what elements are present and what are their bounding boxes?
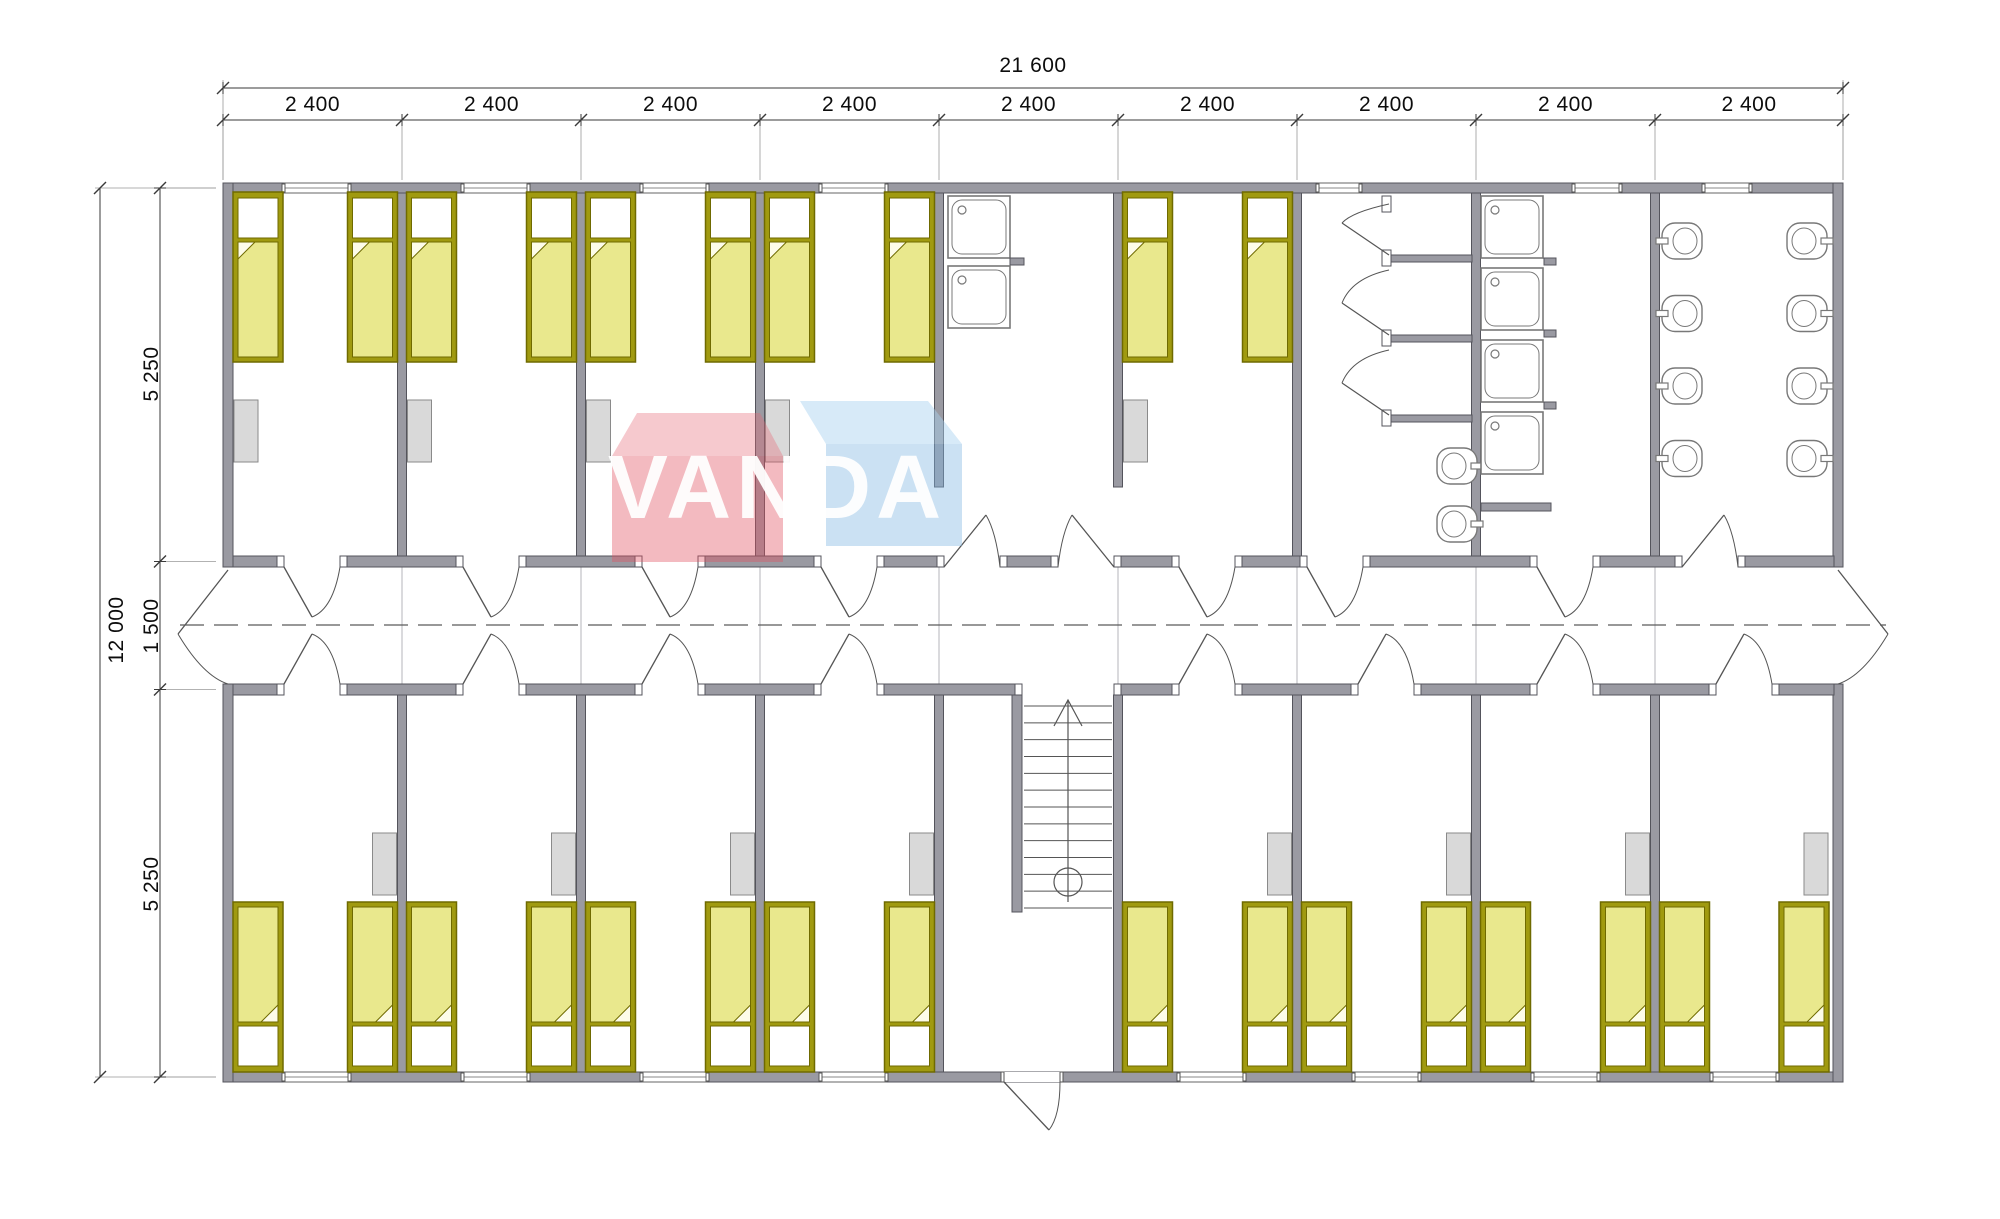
door-jamb-post [1382, 330, 1391, 346]
door-jamb-post [1351, 684, 1358, 695]
door-jamb-post [1414, 684, 1421, 695]
wall-corridor-bottom [1772, 684, 1834, 695]
window-bottom-jamb [282, 1073, 285, 1081]
drain-icon [1491, 350, 1499, 358]
door-leaf [1072, 515, 1114, 567]
wall-room-divider [935, 695, 944, 1072]
bed-pillow [353, 198, 393, 238]
door-swing-arc [1335, 567, 1363, 617]
door-jamb-post [1015, 684, 1022, 695]
door-jamb-post [456, 684, 463, 695]
door-jamb-post [340, 684, 347, 695]
door-jamb-post [1382, 196, 1391, 212]
window-top-jamb [1316, 184, 1319, 192]
door-leaf [642, 634, 670, 684]
door-leaf [1358, 634, 1386, 684]
door-jamb-post [814, 556, 821, 567]
dim-top-total: 21 600 [933, 54, 1133, 78]
wardrobe [552, 833, 576, 895]
door-leaf [1179, 567, 1207, 617]
bed-mattress [532, 907, 572, 1022]
bed-mattress [711, 907, 751, 1022]
door-swing-arc [312, 567, 340, 617]
door-jamb-post [277, 684, 284, 695]
wall-corridor-bottom [233, 684, 284, 695]
bed-pillow [711, 198, 751, 238]
tap-icon [1821, 311, 1833, 317]
door-swing-arc [986, 515, 1000, 567]
door-swing-arc [491, 634, 519, 684]
door-leaf [821, 567, 849, 617]
dim-top-segment-4: 2 400 [790, 93, 910, 117]
door-jamb-post [1000, 556, 1007, 567]
wc-stall-partition [1390, 415, 1472, 422]
tap-icon [1656, 383, 1668, 389]
door-jamb-post [1382, 410, 1391, 426]
bed-mattress [711, 242, 751, 357]
drain-icon [1491, 206, 1499, 214]
wardrobe [731, 833, 755, 895]
door-swing-arc [1565, 567, 1593, 617]
bed-pillow [1248, 1026, 1288, 1066]
wall-corridor-top [1000, 556, 1058, 567]
dim-top-segment-2: 2 400 [432, 93, 552, 117]
wc-stall-door-leaf [1342, 383, 1389, 415]
door-jamb-post [1363, 556, 1370, 567]
wall-room-divider [398, 193, 407, 556]
wardrobe [1804, 833, 1828, 895]
door-swing-arc [849, 634, 877, 684]
drain-icon [958, 206, 966, 214]
window-top-jamb [348, 184, 351, 192]
door-opening [1004, 1072, 1060, 1082]
door-jamb-post [1530, 556, 1537, 567]
bed-mattress [412, 907, 452, 1022]
bed-mattress [1248, 907, 1288, 1022]
bed-pillow [591, 198, 631, 238]
bed-pillow [412, 198, 452, 238]
dim-left-seg-3: 5 250 [140, 804, 164, 964]
door-jamb-post [456, 556, 463, 567]
drain-icon [958, 276, 966, 284]
watermark-text: VANDA [608, 438, 946, 538]
dim-top-segment-5: 2 400 [969, 93, 1089, 117]
bed-pillow [238, 198, 278, 238]
bed-mattress [532, 242, 572, 357]
dim-top-segment-7: 2 400 [1327, 93, 1447, 117]
door-jamb-post [698, 684, 705, 695]
wall-room-divider [1472, 193, 1481, 556]
door-jamb-post [1382, 250, 1391, 266]
door-jamb-post [519, 556, 526, 567]
wall-exterior-left [223, 684, 233, 1082]
door-jamb-post [1530, 684, 1537, 695]
bed-mattress [1128, 907, 1168, 1022]
bed-pillow [412, 1026, 452, 1066]
bed-pillow [353, 1026, 393, 1066]
door-leaf [1307, 567, 1335, 617]
wall-room-divider [398, 695, 407, 1072]
door-leaf [1537, 634, 1565, 684]
door-jamb-post [1235, 556, 1242, 567]
wall-corridor-bottom [519, 684, 642, 695]
bed-pillow [890, 1026, 930, 1066]
wall-room-divider [756, 695, 765, 1072]
door-jamb-post [1235, 684, 1242, 695]
window-bottom-jamb [1710, 1073, 1713, 1081]
bed-mattress [1307, 907, 1347, 1022]
door-jamb-post [1772, 684, 1779, 695]
wc-stall-partition [1390, 255, 1472, 262]
partition-stub [1544, 402, 1556, 409]
bed-mattress [1784, 907, 1824, 1022]
wall-corridor-top [1738, 556, 1834, 567]
door-jamb-post [937, 556, 944, 567]
door-swing-arc [670, 634, 698, 684]
wall-stair-shaft [1012, 695, 1022, 912]
tap-icon [1656, 311, 1668, 317]
wardrobe [373, 833, 397, 895]
window-bottom-jamb [1597, 1073, 1600, 1081]
bed-pillow [238, 1026, 278, 1066]
bed-pillow [1486, 1026, 1526, 1066]
wardrobe [1124, 400, 1148, 462]
bed-pillow [1128, 198, 1168, 238]
bed-pillow [770, 198, 810, 238]
exterior-door-arc [1049, 1082, 1060, 1130]
window-top-jamb [885, 184, 888, 192]
partition-stub [1481, 503, 1551, 511]
door-swing-arc [1565, 634, 1593, 684]
wall-corridor-top [340, 556, 463, 567]
bed-mattress [1486, 907, 1526, 1022]
door-leaf [642, 567, 670, 617]
window-top-jamb [640, 184, 643, 192]
window-bottom-jamb [706, 1073, 709, 1081]
door-swing-arc [491, 567, 519, 617]
bed-pillow [1128, 1026, 1168, 1066]
dim-left-seg-2: 1 500 [140, 546, 164, 706]
window-top-jamb [527, 184, 530, 192]
door-jamb-post [1709, 684, 1716, 695]
drain-icon [1491, 278, 1499, 286]
exterior-door-leaf [1004, 1082, 1049, 1130]
bed-mattress [1606, 907, 1646, 1022]
wall-corridor-top [233, 556, 284, 567]
bed-pillow [591, 1026, 631, 1066]
window-top-jamb [706, 184, 709, 192]
tap-icon [1821, 456, 1833, 462]
bed-mattress [591, 242, 631, 357]
wall-corridor-top [1363, 556, 1537, 567]
wc-stall-door-arc [1342, 350, 1389, 383]
door-jamb-post [1675, 556, 1682, 567]
door-jamb-post [877, 684, 884, 695]
window-top-jamb [1702, 184, 1705, 192]
exterior-door-arc [1838, 634, 1888, 684]
door-swing-arc [1207, 634, 1235, 684]
window-bottom-jamb [348, 1073, 351, 1081]
door-jamb-post [877, 556, 884, 567]
bed-mattress [890, 242, 930, 357]
window-top-jamb [819, 184, 822, 192]
partition-stub [1544, 330, 1556, 337]
wall-corridor-top [1235, 556, 1307, 567]
tap-icon [1821, 383, 1833, 389]
door-jamb-post [1593, 684, 1600, 695]
tap-icon [1821, 238, 1833, 244]
dim-left-total: 12 000 [105, 550, 129, 710]
bed-mattress [238, 907, 278, 1022]
wall-room-divider [1651, 695, 1660, 1072]
wall-exterior-left [223, 183, 233, 567]
door-swing-arc [1744, 634, 1772, 684]
door-jamb-post [1114, 684, 1121, 695]
door-jamb-post [635, 684, 642, 695]
tap-icon [1656, 238, 1668, 244]
shower-tray [948, 266, 1010, 328]
wall-room-divider [1472, 695, 1481, 1072]
shower-tray [1481, 268, 1543, 330]
bed-pillow [1665, 1026, 1705, 1066]
door-swing-arc [849, 567, 877, 617]
partition-stub [1010, 258, 1024, 265]
window-bottom-jamb [1531, 1073, 1534, 1081]
bed-pillow [532, 198, 572, 238]
wall-corridor-top [877, 556, 944, 567]
bed-mattress [353, 907, 393, 1022]
wall-corridor-bottom [877, 684, 1022, 695]
dim-top-segment-3: 2 400 [611, 93, 731, 117]
window-bottom-jamb [819, 1073, 822, 1081]
window-bottom-jamb [461, 1073, 464, 1081]
door-leaf [1682, 515, 1724, 567]
door-jamb-post [1114, 556, 1121, 567]
door-swing-arc [1207, 567, 1235, 617]
door-leaf [284, 567, 312, 617]
drain-icon [1491, 422, 1499, 430]
wardrobe [1626, 833, 1650, 895]
door-leaf [1716, 634, 1744, 684]
door-swing-arc [1724, 515, 1738, 567]
bed-pillow [532, 1026, 572, 1066]
tap-icon [1656, 456, 1668, 462]
bed-pillow [1307, 1026, 1347, 1066]
partition-stub [1544, 258, 1556, 265]
door-jamb-post [1738, 556, 1745, 567]
dim-top-segment-8: 2 400 [1506, 93, 1626, 117]
bed-mattress [1128, 242, 1168, 357]
wall-room-divider [1651, 193, 1660, 556]
wall-room-divider [1293, 695, 1302, 1072]
door-jamb-post [1060, 1072, 1063, 1082]
wardrobe [1268, 833, 1292, 895]
wc-stall-door-arc [1342, 270, 1389, 303]
window-top-jamb [1359, 184, 1362, 192]
wall-room-divider [577, 695, 586, 1072]
door-leaf [284, 634, 312, 684]
bed-mattress [770, 907, 810, 1022]
bed-pillow [770, 1026, 810, 1066]
floor-plan-svg: VANDA [0, 0, 2000, 1219]
tap-icon [1471, 521, 1483, 527]
wall-exterior-right [1833, 684, 1843, 1082]
door-jamb-post [1172, 684, 1179, 695]
door-jamb-post [814, 684, 821, 695]
dim-left-seg-1: 5 250 [140, 294, 164, 454]
wall-corridor-bottom [698, 684, 821, 695]
window-bottom-jamb [640, 1073, 643, 1081]
window-bottom-jamb [1352, 1073, 1355, 1081]
dim-top-segment-1: 2 400 [253, 93, 373, 117]
door-leaf [463, 567, 491, 617]
window-bottom-jamb [1418, 1073, 1421, 1081]
wall-room-divider [1114, 695, 1123, 1072]
dim-top-segment-9: 2 400 [1689, 93, 1809, 117]
bed-mattress [238, 242, 278, 357]
exterior-door-arc [178, 634, 228, 684]
door-leaf [463, 634, 491, 684]
shower-tray [948, 196, 1010, 258]
wall-corridor-top [1114, 556, 1179, 567]
window-bottom-jamb [1177, 1073, 1180, 1081]
bed-pillow [711, 1026, 751, 1066]
bed-mattress [890, 907, 930, 1022]
bed-mattress [1427, 907, 1467, 1022]
bed-pillow [1427, 1026, 1467, 1066]
bed-pillow [1606, 1026, 1646, 1066]
wardrobe [408, 400, 432, 462]
door-jamb-post [519, 684, 526, 695]
wc-stall-door-leaf [1342, 303, 1389, 335]
window-top-jamb [1619, 184, 1622, 192]
window-bottom-jamb [1776, 1073, 1779, 1081]
bed-pillow [1248, 198, 1288, 238]
wall-corridor-bottom [1114, 684, 1179, 695]
floorplan-sheet: VANDA 21 600 2 4002 4002 4002 4002 4002 … [0, 0, 2000, 1219]
bed-mattress [770, 242, 810, 357]
door-jamb-post [1001, 1072, 1004, 1082]
bed-mattress [1248, 242, 1288, 357]
bed-mattress [1665, 907, 1705, 1022]
window-bottom-jamb [527, 1073, 530, 1081]
door-jamb-post [1172, 556, 1179, 567]
door-leaf [1537, 567, 1565, 617]
wardrobe [234, 400, 258, 462]
shower-tray [1481, 340, 1543, 402]
window-bottom-jamb [1243, 1073, 1246, 1081]
door-jamb-post [1300, 556, 1307, 567]
door-swing-arc [1058, 515, 1072, 567]
bed-pillow [1784, 1026, 1824, 1066]
wall-corridor-bottom [1593, 684, 1716, 695]
door-swing-arc [312, 634, 340, 684]
bed-mattress [353, 242, 393, 357]
wall-corridor-bottom [1414, 684, 1537, 695]
dim-top-segment-6: 2 400 [1148, 93, 1268, 117]
wall-corridor-bottom [1235, 684, 1358, 695]
door-leaf [821, 634, 849, 684]
bed-mattress [591, 907, 631, 1022]
window-bottom-jamb [885, 1073, 888, 1081]
wall-room-divider [1114, 193, 1123, 487]
shower-tray [1481, 196, 1543, 258]
window-top-jamb [461, 184, 464, 192]
door-jamb-post [1593, 556, 1600, 567]
window-top-jamb [1749, 184, 1752, 192]
wc-stall-door-leaf [1342, 223, 1389, 255]
wardrobe [910, 833, 934, 895]
door-jamb-post [340, 556, 347, 567]
shower-tray [1481, 412, 1543, 474]
door-swing-arc [670, 567, 698, 617]
door-swing-arc [1386, 634, 1414, 684]
wall-corridor-bottom [340, 684, 463, 695]
door-leaf [1179, 634, 1207, 684]
window-top-jamb [282, 184, 285, 192]
bed-mattress [412, 242, 452, 357]
wardrobe [1447, 833, 1471, 895]
door-jamb-post [1051, 556, 1058, 567]
wc-stall-partition [1390, 335, 1472, 342]
wall-corridor-top [1593, 556, 1682, 567]
wall-exterior-right [1833, 183, 1843, 567]
window-top-jamb [1572, 184, 1575, 192]
wall-room-divider [1293, 193, 1302, 556]
door-jamb-post [277, 556, 284, 567]
wall-room-divider [577, 193, 586, 556]
bed-pillow [890, 198, 930, 238]
